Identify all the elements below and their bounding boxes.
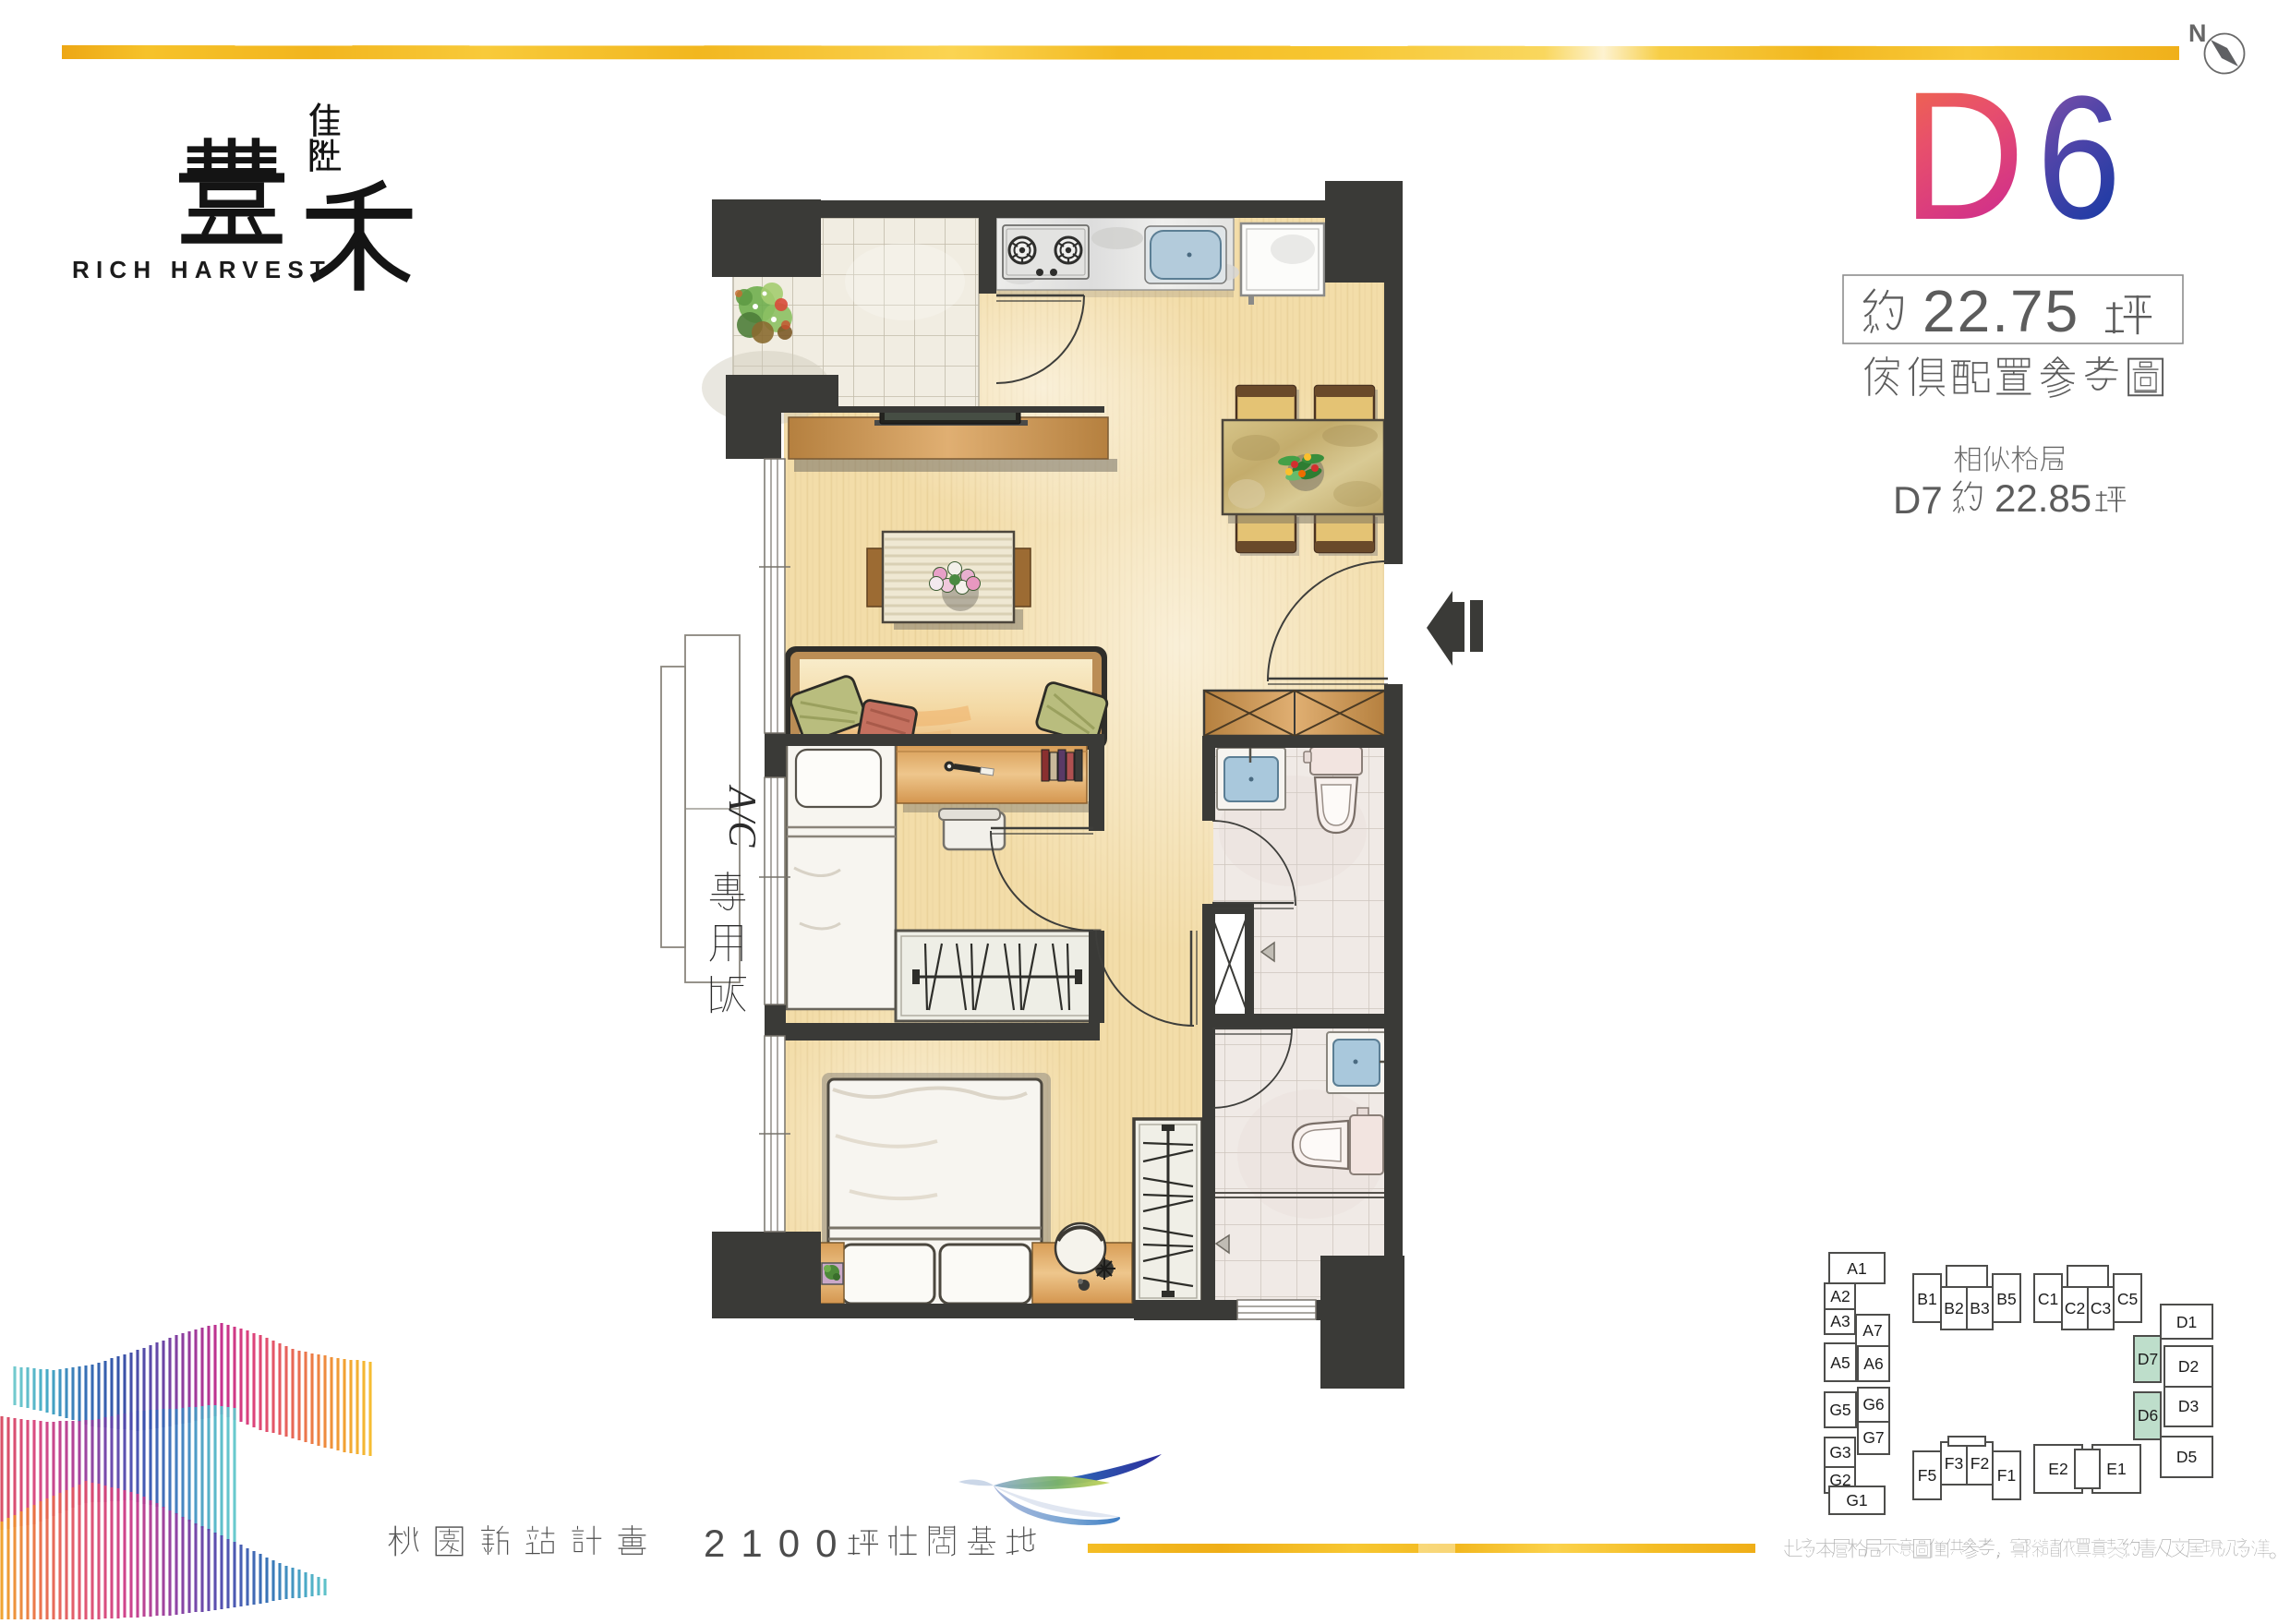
- svg-text:RICH HARVEST: RICH HARVEST: [72, 256, 331, 283]
- svg-text:B1: B1: [1917, 1290, 1936, 1308]
- svg-text:C1: C1: [2038, 1290, 2058, 1308]
- svg-text:B5: B5: [1996, 1290, 2016, 1308]
- svg-text:6: 6: [2037, 59, 2121, 255]
- svg-text:D7: D7: [1893, 478, 1943, 522]
- svg-text:A5: A5: [1830, 1353, 1850, 1372]
- svg-text:A1: A1: [1847, 1259, 1866, 1278]
- svg-text:2100: 2100: [704, 1522, 852, 1565]
- svg-text:D3: D3: [2178, 1397, 2199, 1415]
- svg-text:C3: C3: [2091, 1299, 2111, 1317]
- svg-text:A/C: A/C: [720, 784, 763, 848]
- svg-text:D7: D7: [2138, 1350, 2158, 1368]
- svg-text:G5: G5: [1829, 1401, 1850, 1419]
- svg-text:D: D: [1902, 54, 2025, 259]
- svg-text:D1: D1: [2176, 1313, 2197, 1331]
- svg-text:A3: A3: [1830, 1312, 1850, 1330]
- svg-text:G2: G2: [1829, 1471, 1850, 1489]
- svg-text:G6: G6: [1862, 1395, 1884, 1413]
- svg-text:F5: F5: [1918, 1466, 1936, 1485]
- svg-text:G3: G3: [1829, 1443, 1850, 1462]
- svg-text:E1: E1: [2106, 1460, 2126, 1478]
- svg-text:F1: F1: [1997, 1466, 2016, 1485]
- svg-text:F3: F3: [1945, 1454, 1963, 1473]
- svg-text:G7: G7: [1862, 1428, 1884, 1447]
- svg-text:E2: E2: [2048, 1460, 2067, 1478]
- svg-text:G1: G1: [1846, 1491, 1867, 1510]
- svg-text:A2: A2: [1830, 1287, 1850, 1305]
- svg-text:B3: B3: [1970, 1299, 1989, 1317]
- svg-text:N: N: [2188, 19, 2207, 47]
- svg-text:22.85: 22.85: [1995, 476, 2091, 520]
- svg-text:22.75: 22.75: [1922, 278, 2079, 344]
- svg-text:C2: C2: [2065, 1299, 2085, 1317]
- svg-text:B2: B2: [1944, 1299, 1963, 1317]
- svg-text:D5: D5: [2176, 1448, 2197, 1466]
- svg-text:D2: D2: [2178, 1357, 2199, 1376]
- svg-text:C5: C5: [2117, 1290, 2138, 1308]
- svg-text:F2: F2: [1971, 1454, 1989, 1473]
- svg-text:D6: D6: [2138, 1406, 2158, 1425]
- svg-text:A6: A6: [1863, 1354, 1883, 1373]
- svg-text:A7: A7: [1862, 1321, 1882, 1340]
